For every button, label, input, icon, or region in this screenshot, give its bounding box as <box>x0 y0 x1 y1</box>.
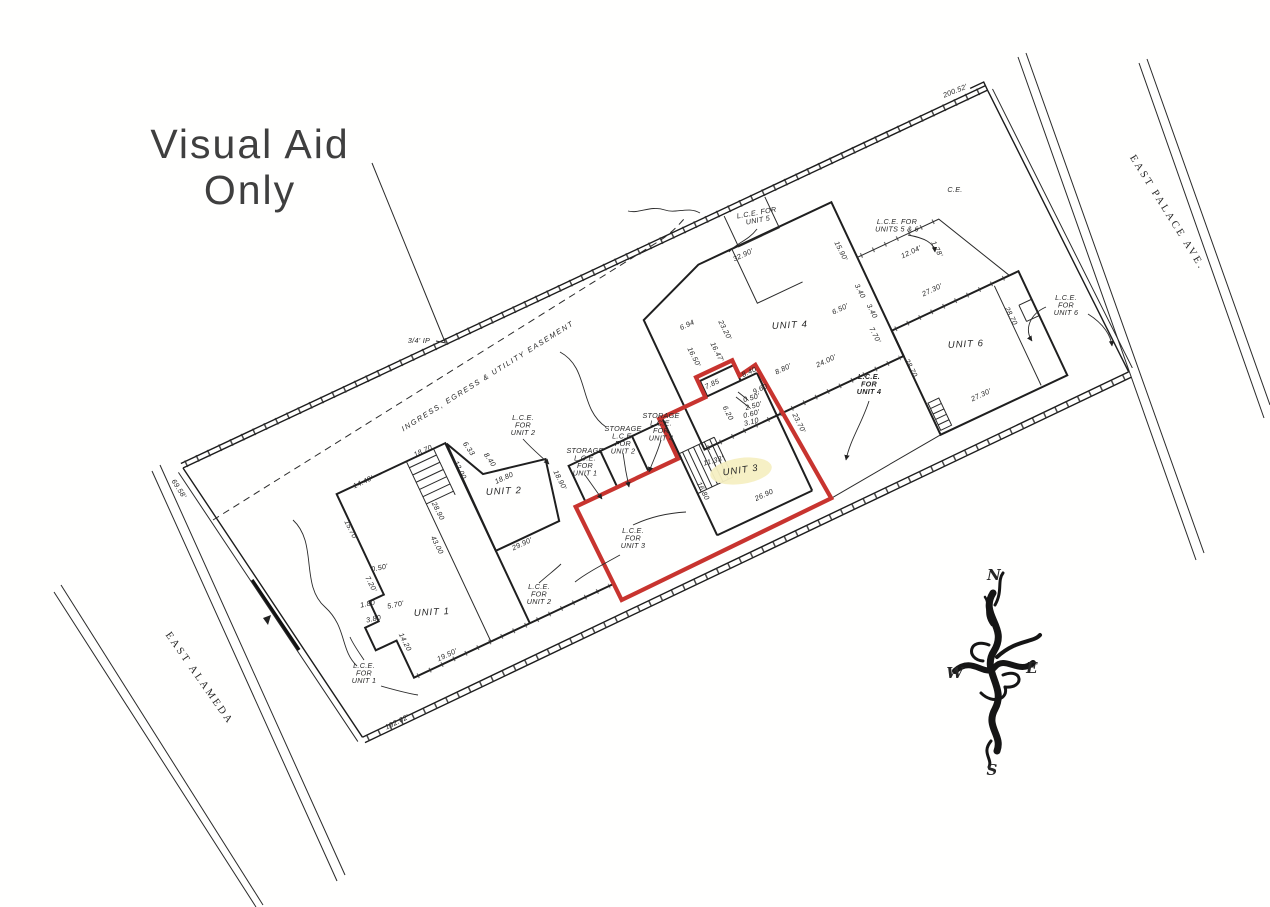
compass-letter-e: E <box>1025 659 1038 677</box>
leader-lce-unit2-upper <box>523 439 549 464</box>
label-storage-unit4: STORAGEL.C.E.FORUNIT 4 <box>642 411 679 443</box>
label-storage-unit2: STORAGEL.C.E.FORUNIT 2 <box>604 424 641 456</box>
easement-dashed-line <box>213 219 684 520</box>
squiggle-top-lce5 <box>628 208 700 213</box>
dim: 23.20' <box>716 317 734 341</box>
dim: 3.80 <box>365 613 382 625</box>
dim-boundary-north: 200.52' <box>941 82 969 100</box>
dim: 3.40 <box>865 302 880 320</box>
lot-boundary-west <box>178 452 357 762</box>
dim: 15.70' <box>342 518 360 541</box>
east-alameda-road-line <box>61 585 263 905</box>
label-lce-unit6: L.C.E.FORUNIT 6 <box>1054 293 1079 317</box>
label-unit4: UNIT 4 <box>772 319 809 332</box>
dim: 3.40 <box>853 282 868 300</box>
label-lce-unit2-upper: L.C.E.FORUNIT 2 <box>511 413 536 437</box>
label-lce-unit1: L.C.E.FORUNIT 1 <box>352 661 377 685</box>
dim: 6.94 <box>678 317 696 332</box>
dim: 18.80 <box>493 470 514 486</box>
label-iron-pipe: 3/4' IP <box>408 336 430 345</box>
dim: 15.90' <box>832 239 850 262</box>
dim: 14.20 <box>397 631 414 652</box>
label-lce-unit4: L.C.E.FORUNIT 4 <box>857 372 882 396</box>
street-east-palace: EAST PALACE AVE. <box>1127 153 1207 272</box>
dim: 27.30' <box>920 281 944 299</box>
dim: 26.90 <box>752 487 774 504</box>
label-lce-unit3: L.C.E.FORUNIT 3 <box>621 526 646 550</box>
dim: 32.90' <box>731 246 754 263</box>
dim: 28.70 <box>902 356 919 378</box>
dim: 18.90' <box>551 468 569 491</box>
fence-line-at-iron-pipe <box>372 163 445 342</box>
dim: 16.47' <box>708 340 726 363</box>
unit4-interior-wall <box>732 228 803 304</box>
east-alameda-road-line <box>54 592 256 907</box>
east-palace-road-line <box>1026 53 1204 553</box>
dim: 7.70' <box>867 325 883 344</box>
east-palace-road-line <box>1139 63 1264 418</box>
label-ce: C.E. <box>947 185 962 194</box>
dim: 8.80' <box>773 361 792 376</box>
unit1-interior-wall <box>428 508 491 642</box>
dim: 0.50' <box>370 561 389 573</box>
dim: 18.70 <box>412 443 433 459</box>
dim: 6.33 <box>461 440 477 458</box>
dim: 6.50' <box>830 301 849 316</box>
dim: 1.78' <box>929 239 945 258</box>
dim: 7.20' <box>363 574 379 593</box>
label-storage-unit1: STORAGEL.C.E.FORUNIT 1 <box>566 446 603 478</box>
label-lce-units-5-6: L.C.E. FORUNITS 5 & 6 <box>875 217 919 234</box>
dim: 12.00 <box>452 459 469 480</box>
unit6-interior-wall <box>994 286 1041 386</box>
street-lines <box>54 53 1270 907</box>
dim: 8.40 <box>482 451 498 469</box>
label-lce-unit2-lower: L.C.E.FORUNIT 2 <box>527 582 552 606</box>
squiggle-lce1-yard <box>293 520 357 666</box>
dim-boundary-west: 69.58' <box>170 477 189 500</box>
dim: 12.04' <box>899 243 922 260</box>
plat-page: Visual Aid Only <box>0 0 1270 907</box>
label-unit2: UNIT 2 <box>486 485 523 498</box>
compass-letter-s: S <box>986 761 997 779</box>
survey-marker-triangle <box>263 615 271 625</box>
compass-letter-n: N <box>986 566 1002 584</box>
plan-text-layer: C.E.L.C.E. FORUNIT 5L.C.E. FORUNITS 5 & … <box>163 82 1207 779</box>
dim: 28.70 <box>1002 304 1019 326</box>
dim: 5.70' <box>386 598 405 610</box>
east-alameda-road-line <box>152 471 337 881</box>
east-palace-road-line <box>1018 57 1196 560</box>
unit6-walls <box>892 271 1068 435</box>
leader-storage-unit1 <box>585 475 602 499</box>
dim-boundary-south: 192.62' <box>383 712 410 731</box>
lot-boundary-north-hatch <box>186 90 983 464</box>
dim: 24.00' <box>814 352 838 370</box>
street-east-alameda: EAST ALAMEDA <box>163 630 235 727</box>
lot-boundary-west <box>183 448 362 758</box>
lot-boundary-south <box>363 377 1133 742</box>
label-unit6: UNIT 6 <box>948 338 985 351</box>
dim: 28.90 <box>429 499 446 521</box>
compass-letter-w: W <box>946 664 965 682</box>
dim: 27.30' <box>969 386 993 404</box>
lot-boundary-east <box>992 86 1132 372</box>
leader-lce-unit4 <box>846 401 869 460</box>
dim: 6.20 <box>721 404 736 422</box>
dim: 43.00 <box>429 534 446 555</box>
label-unit1: UNIT 1 <box>414 606 451 619</box>
plat-drawing: C.E.L.C.E. FORUNIT 5L.C.E. FORUNITS 5 & … <box>0 0 1270 907</box>
curb-segment <box>252 580 299 650</box>
squiggle-easement-storage <box>560 352 606 427</box>
leader-lce-unit2-lower <box>539 564 561 583</box>
dim: 14.40' <box>351 473 374 490</box>
dim: 16.50' <box>685 345 703 368</box>
east-palace-road-line <box>1147 59 1270 405</box>
label-lce-unit5: L.C.E. FORUNIT 5 <box>736 205 778 228</box>
